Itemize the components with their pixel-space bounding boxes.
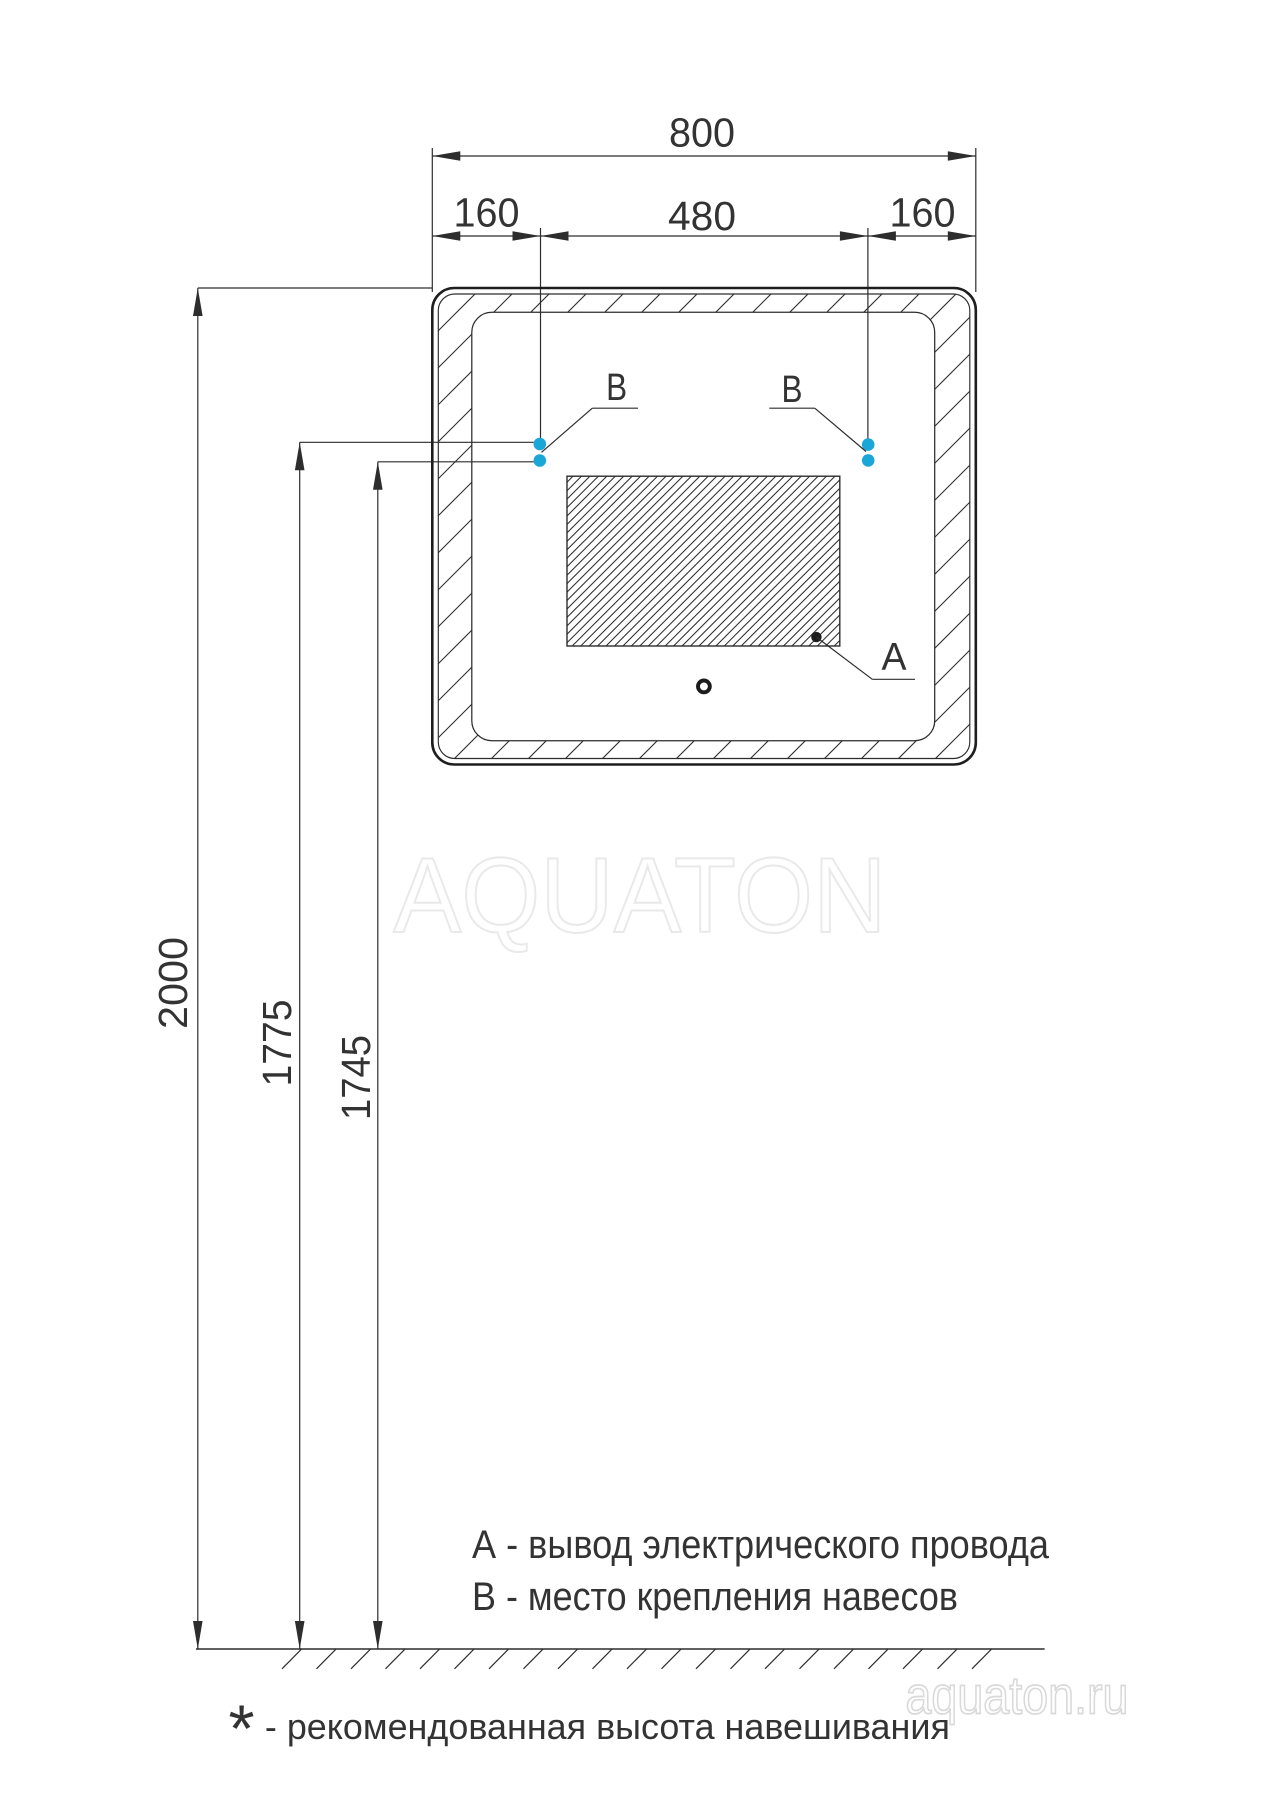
svg-text:480: 480 xyxy=(668,193,736,239)
svg-text:B: B xyxy=(782,369,803,411)
svg-text:B: B xyxy=(606,367,627,409)
svg-text:AQUATON: AQUATON xyxy=(394,835,887,955)
svg-text:1775: 1775 xyxy=(254,1000,300,1087)
svg-text:А - вывод электрического прово: А - вывод электрического провода xyxy=(472,1523,1050,1567)
svg-text:160: 160 xyxy=(890,190,956,236)
svg-text:A: A xyxy=(882,636,907,679)
svg-text:800: 800 xyxy=(669,110,735,156)
svg-text:160: 160 xyxy=(454,190,520,236)
svg-text:- рекомендованная высота навеш: - рекомендованная высота навешивания xyxy=(265,1706,950,1747)
svg-text:*: * xyxy=(229,1692,255,1767)
svg-text:2000: 2000 xyxy=(150,937,196,1029)
svg-text:В - место крепления навесов: В - место крепления навесов xyxy=(472,1575,958,1619)
svg-text:1745: 1745 xyxy=(333,1035,379,1120)
